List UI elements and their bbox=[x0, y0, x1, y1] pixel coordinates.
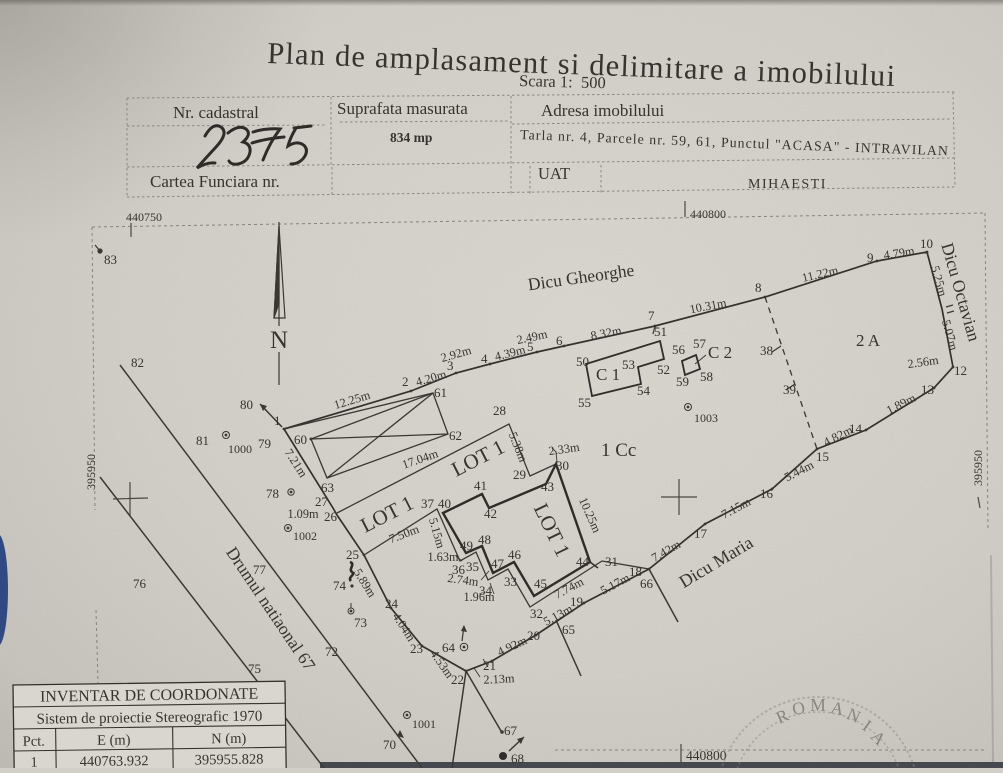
svg-text:12: 12 bbox=[954, 363, 967, 378]
svg-text:49: 49 bbox=[460, 538, 473, 553]
svg-text:24: 24 bbox=[385, 596, 399, 611]
svg-text:58: 58 bbox=[700, 369, 713, 384]
svg-text:Adresa imobilului: Adresa imobilului bbox=[541, 101, 665, 120]
svg-text:15: 15 bbox=[816, 449, 829, 464]
svg-text:Cartea Funciara nr.: Cartea Funciara nr. bbox=[150, 172, 280, 191]
svg-text:21: 21 bbox=[483, 658, 496, 673]
svg-text:55: 55 bbox=[578, 395, 591, 410]
svg-text:37: 37 bbox=[421, 496, 435, 511]
svg-text:MIHAESTI: MIHAESTI bbox=[748, 177, 827, 192]
svg-text:2.13m: 2.13m bbox=[483, 671, 515, 687]
svg-text:26: 26 bbox=[324, 509, 338, 524]
svg-text:72: 72 bbox=[325, 644, 338, 659]
svg-text:40: 40 bbox=[438, 496, 451, 511]
svg-text:66: 66 bbox=[640, 576, 654, 591]
svg-text:35: 35 bbox=[466, 559, 479, 574]
svg-text:440750: 440750 bbox=[126, 210, 162, 224]
svg-text:1 Cc: 1 Cc bbox=[601, 440, 636, 461]
svg-text:50: 50 bbox=[576, 354, 589, 369]
svg-text:23: 23 bbox=[410, 641, 423, 656]
svg-text:29: 29 bbox=[513, 467, 526, 482]
svg-text:45: 45 bbox=[534, 576, 547, 591]
svg-text:16: 16 bbox=[760, 486, 774, 501]
svg-text:47: 47 bbox=[491, 556, 505, 571]
svg-text:3: 3 bbox=[447, 358, 454, 373]
svg-text:9: 9 bbox=[867, 250, 874, 265]
svg-text:1.09m: 1.09m bbox=[287, 507, 319, 521]
svg-text:10: 10 bbox=[920, 236, 933, 251]
svg-text:18: 18 bbox=[629, 564, 642, 579]
svg-text:1: 1 bbox=[30, 755, 37, 768]
svg-text:30: 30 bbox=[556, 458, 569, 473]
svg-text:36: 36 bbox=[452, 562, 466, 577]
svg-text:440800: 440800 bbox=[690, 207, 726, 221]
svg-text:C 2: C 2 bbox=[708, 343, 732, 362]
svg-text:14: 14 bbox=[849, 421, 863, 436]
svg-text:75: 75 bbox=[248, 661, 261, 676]
svg-text:Pct.: Pct. bbox=[23, 734, 45, 750]
svg-text:1003: 1003 bbox=[694, 411, 718, 425]
svg-text:395955.828: 395955.828 bbox=[195, 752, 264, 768]
svg-text:N (m): N (m) bbox=[211, 731, 246, 747]
svg-text:57: 57 bbox=[693, 336, 707, 351]
svg-text:67: 67 bbox=[504, 723, 518, 738]
svg-text:59: 59 bbox=[676, 374, 689, 389]
svg-text:42: 42 bbox=[484, 506, 497, 521]
svg-text:2: 2 bbox=[402, 374, 409, 389]
svg-text:39: 39 bbox=[783, 382, 796, 397]
svg-text:5: 5 bbox=[527, 339, 534, 354]
svg-text:UAT: UAT bbox=[538, 164, 570, 183]
svg-text:41: 41 bbox=[474, 478, 487, 493]
svg-text:4: 4 bbox=[481, 351, 488, 366]
svg-text:N: N bbox=[270, 327, 288, 354]
svg-text:61: 61 bbox=[434, 385, 447, 400]
svg-text:395950: 395950 bbox=[971, 450, 985, 486]
svg-text:32: 32 bbox=[530, 606, 543, 621]
svg-text:Scara 1: 500: Scara 1: 500 bbox=[519, 71, 606, 92]
svg-text:73: 73 bbox=[354, 615, 367, 630]
svg-text:53: 53 bbox=[622, 357, 635, 372]
svg-text:Nr. cadastral: Nr. cadastral bbox=[173, 103, 259, 122]
svg-text:1002: 1002 bbox=[293, 529, 317, 543]
svg-text:80: 80 bbox=[240, 397, 253, 412]
svg-text:1001: 1001 bbox=[412, 717, 436, 731]
svg-text:33: 33 bbox=[504, 574, 517, 589]
svg-text:1: 1 bbox=[274, 413, 281, 428]
svg-text:22: 22 bbox=[451, 672, 464, 687]
svg-text:31: 31 bbox=[605, 554, 618, 569]
svg-text:6: 6 bbox=[556, 333, 563, 348]
svg-text:60: 60 bbox=[294, 432, 307, 447]
svg-text:34: 34 bbox=[479, 583, 493, 598]
svg-text:440800: 440800 bbox=[686, 748, 727, 763]
svg-text:395950: 395950 bbox=[84, 454, 98, 490]
svg-text:13: 13 bbox=[921, 382, 934, 397]
svg-text:28: 28 bbox=[493, 403, 506, 418]
svg-text:17: 17 bbox=[694, 526, 708, 541]
svg-text:1000: 1000 bbox=[228, 442, 252, 456]
svg-text:20: 20 bbox=[527, 628, 540, 643]
svg-text:19: 19 bbox=[570, 594, 583, 609]
svg-text:44: 44 bbox=[576, 554, 590, 569]
svg-text:76: 76 bbox=[133, 576, 147, 591]
svg-text:64: 64 bbox=[442, 640, 456, 655]
svg-text:82: 82 bbox=[131, 355, 144, 370]
svg-text:M: M bbox=[810, 695, 826, 715]
svg-text:65: 65 bbox=[562, 622, 575, 637]
svg-text:74: 74 bbox=[333, 578, 347, 593]
svg-text:51: 51 bbox=[654, 324, 667, 339]
svg-text:70: 70 bbox=[383, 737, 396, 752]
svg-text:Suprafata masurata: Suprafata masurata bbox=[337, 99, 468, 118]
svg-text:79: 79 bbox=[258, 436, 271, 451]
svg-text:C 1: C 1 bbox=[596, 365, 620, 384]
svg-text:2 A: 2 A bbox=[856, 331, 881, 350]
svg-text:78: 78 bbox=[266, 486, 279, 501]
svg-text:834 mp: 834 mp bbox=[390, 130, 432, 145]
svg-text:77: 77 bbox=[253, 562, 267, 577]
svg-text:48: 48 bbox=[478, 532, 491, 547]
svg-text:27: 27 bbox=[315, 494, 329, 509]
svg-text:38: 38 bbox=[760, 343, 773, 358]
svg-text:INVENTAR DE COORDONATE: INVENTAR DE COORDONATE bbox=[40, 686, 258, 706]
svg-text:8: 8 bbox=[755, 280, 762, 295]
svg-text:E (m): E (m) bbox=[97, 732, 131, 748]
svg-text:63: 63 bbox=[321, 480, 334, 495]
svg-text:25: 25 bbox=[346, 547, 359, 562]
svg-text:54: 54 bbox=[637, 383, 651, 398]
svg-text:83: 83 bbox=[104, 252, 117, 267]
svg-text:68: 68 bbox=[511, 751, 524, 766]
svg-text:56: 56 bbox=[672, 342, 686, 357]
svg-text:46: 46 bbox=[508, 547, 522, 562]
svg-text:52: 52 bbox=[657, 362, 670, 377]
svg-text:43: 43 bbox=[541, 479, 554, 494]
svg-text:62: 62 bbox=[449, 428, 462, 443]
svg-text:7: 7 bbox=[648, 308, 655, 323]
svg-text:Sistem de proiectie Stereograf: Sistem de proiectie Stereografic 1970 bbox=[36, 709, 262, 728]
svg-text:81: 81 bbox=[196, 433, 209, 448]
svg-text:440763.932: 440763.932 bbox=[80, 753, 149, 768]
